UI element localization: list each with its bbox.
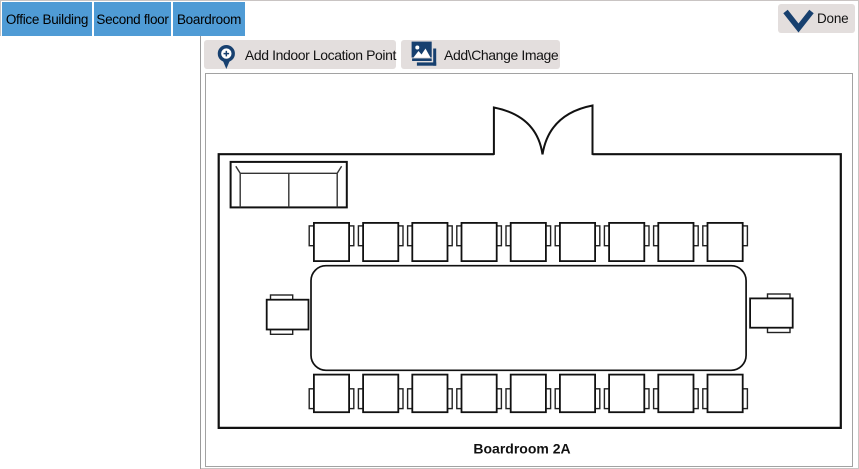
svg-text:Boardroom 2A: Boardroom 2A [473,441,570,457]
